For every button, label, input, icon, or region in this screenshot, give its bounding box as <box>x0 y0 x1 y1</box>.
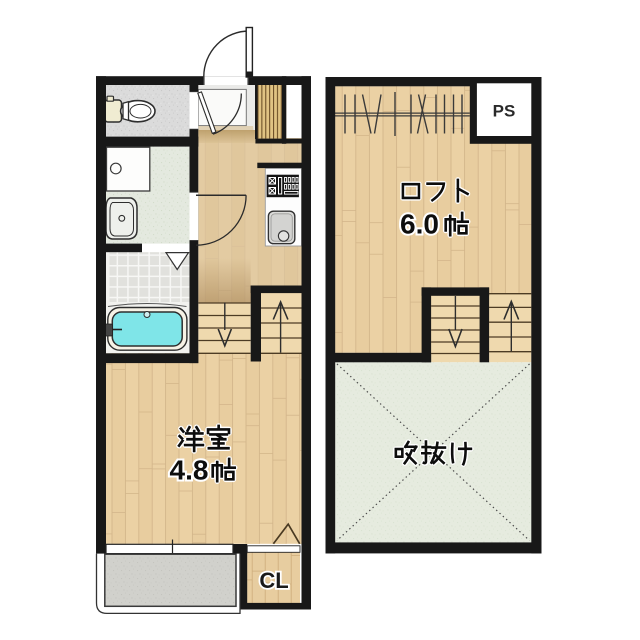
svg-text:PS: PS <box>493 102 516 121</box>
svg-text:CL: CL <box>259 568 288 593</box>
svg-text:6.0: 6.0 <box>400 209 439 240</box>
svg-text:4.8: 4.8 <box>170 455 209 486</box>
